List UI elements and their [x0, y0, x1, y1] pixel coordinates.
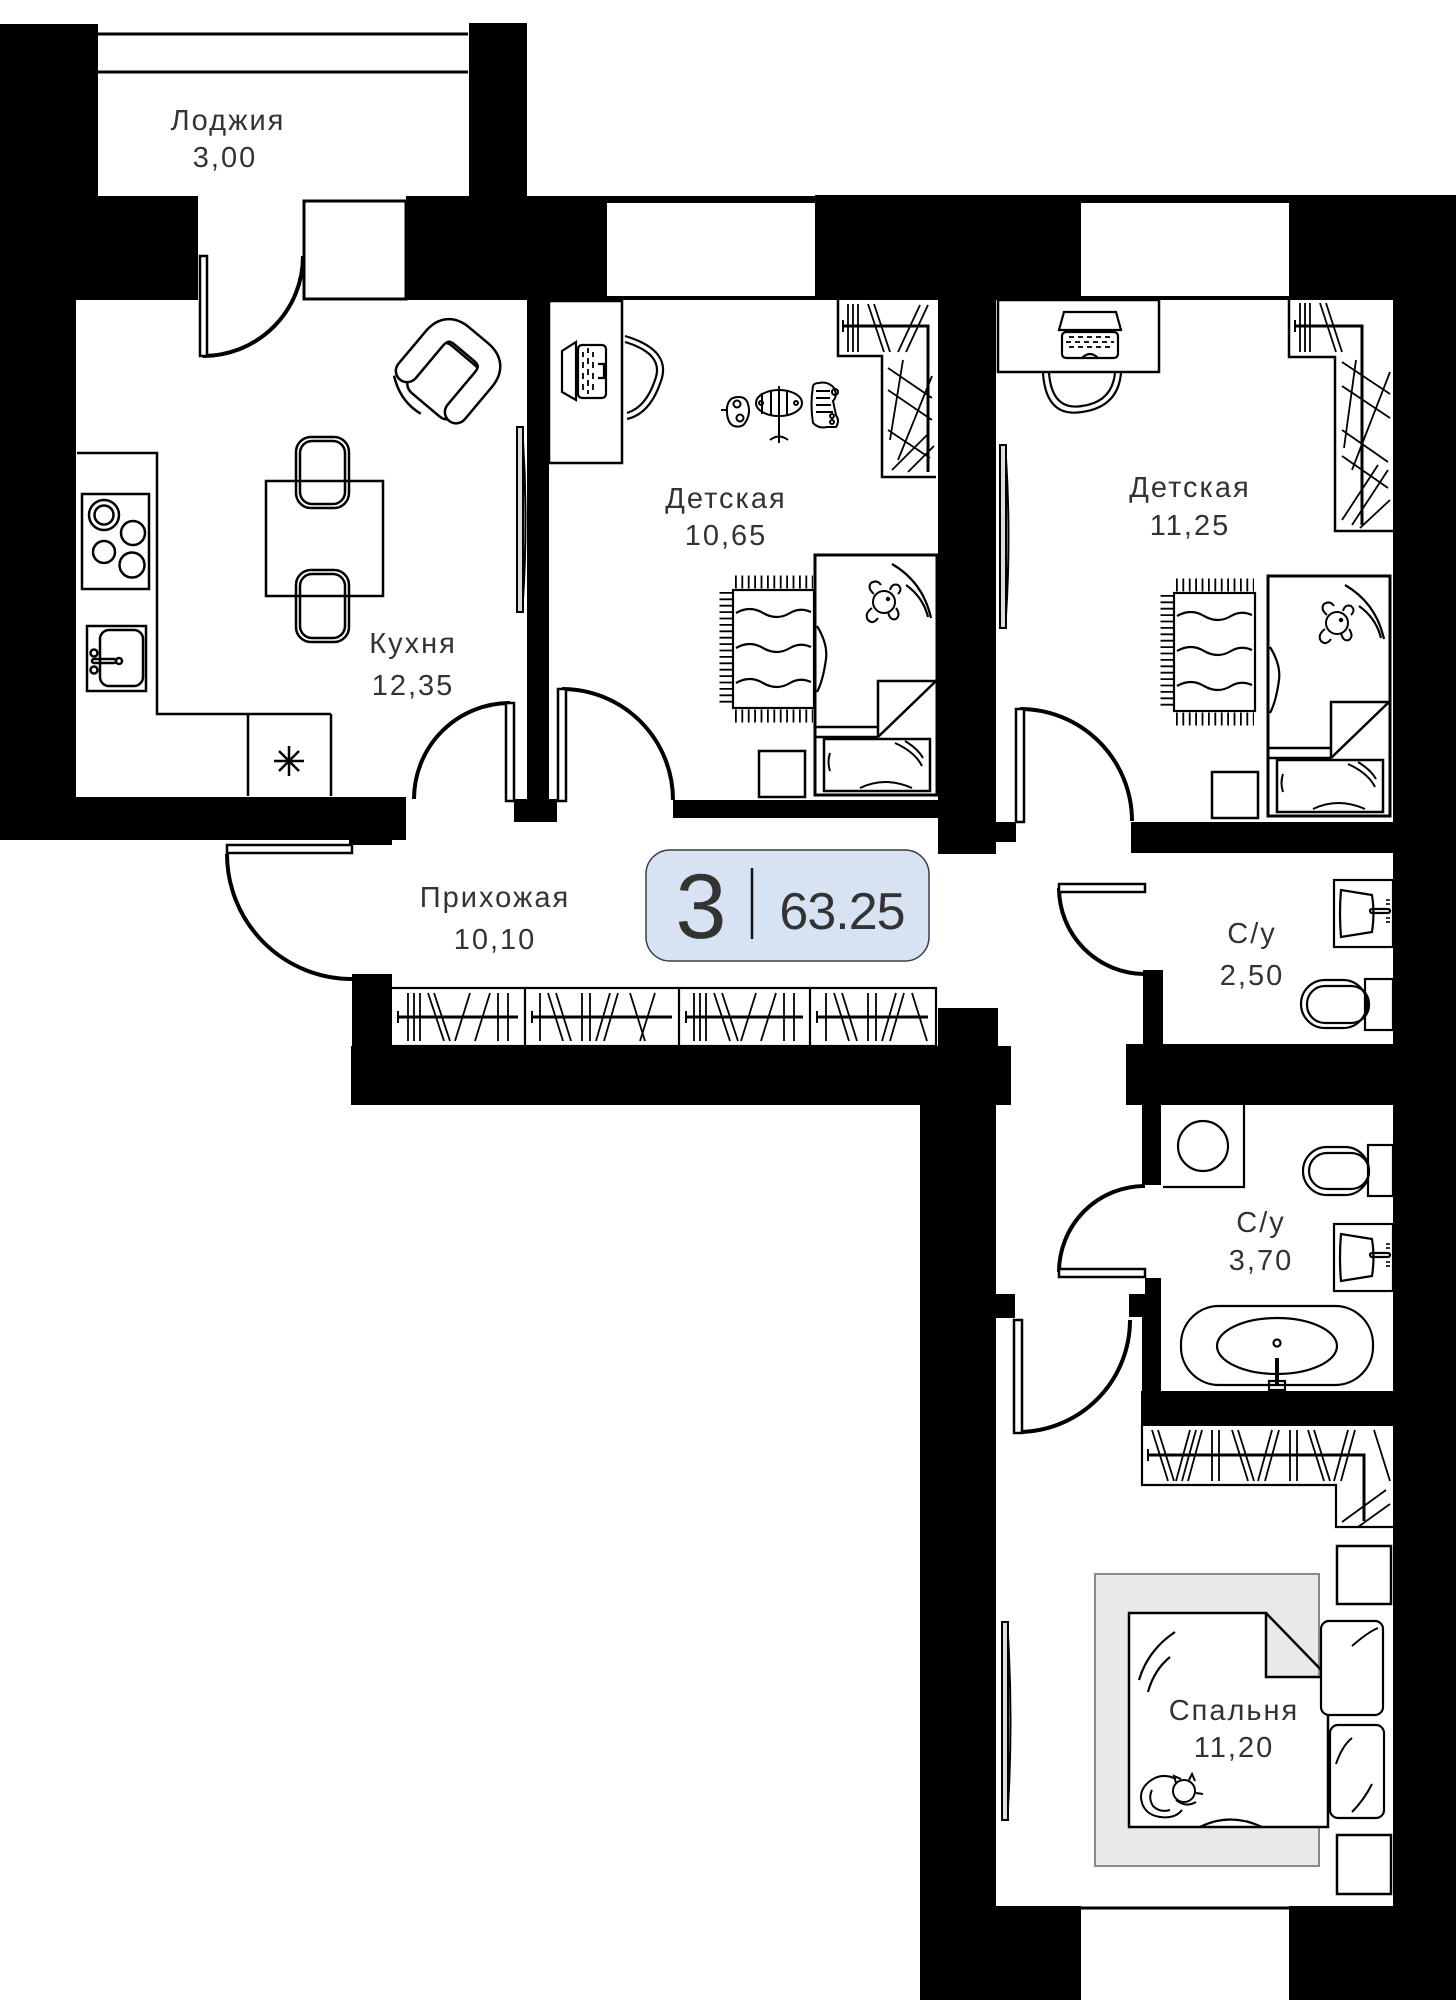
svg-text:Детская: Детская: [1129, 472, 1250, 504]
svg-text:10,65: 10,65: [685, 520, 768, 552]
svg-text:2,50: 2,50: [1220, 960, 1284, 992]
svg-text:3: 3: [675, 856, 726, 958]
svg-text:Детская: Детская: [665, 483, 786, 515]
svg-text:Лоджия: Лоджия: [171, 105, 286, 137]
svg-text:С/у: С/у: [1227, 918, 1277, 950]
svg-text:10,10: 10,10: [454, 924, 537, 956]
svg-text:12,35: 12,35: [372, 670, 455, 702]
svg-text:3,00: 3,00: [193, 142, 257, 174]
svg-text:11,25: 11,25: [1150, 510, 1230, 542]
svg-text:3,70: 3,70: [1229, 1245, 1293, 1277]
svg-text:63.25: 63.25: [779, 883, 904, 941]
svg-text:С/у: С/у: [1236, 1207, 1286, 1239]
svg-text:Прихожая: Прихожая: [420, 882, 570, 914]
svg-text:Кухня: Кухня: [369, 628, 457, 660]
svg-text:11,20: 11,20: [1194, 1732, 1274, 1764]
svg-text:Спальня: Спальня: [1169, 1695, 1300, 1727]
